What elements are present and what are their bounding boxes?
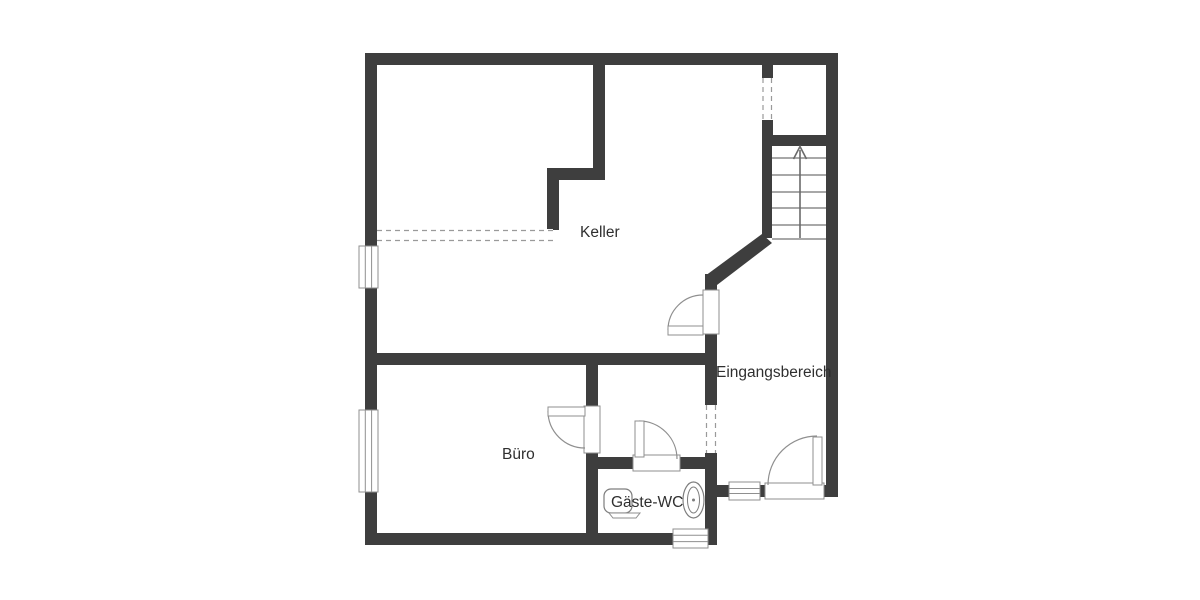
stairs	[772, 147, 826, 240]
door-main-entrance	[765, 436, 824, 499]
landing-wall-segment	[762, 53, 773, 80]
walls	[365, 53, 838, 545]
room-label-keller: Keller	[580, 224, 620, 241]
diagonal-wall	[705, 234, 772, 285]
room-label-gaeste-wc: Gäste-WC	[611, 494, 683, 511]
inner-wall-vertical	[547, 168, 559, 230]
room-label-buero: Büro	[502, 446, 535, 463]
floorplan-canvas: Keller Eingangsbereich Büro Gäste-WC	[0, 0, 1200, 600]
window-symbol-wc-bottom	[673, 529, 708, 548]
wc-wall-segment	[586, 457, 635, 469]
room-label-eingangsbereich: Eingangsbereich	[716, 364, 831, 381]
dashed-opening-corridor	[704, 405, 718, 453]
door-buero	[548, 406, 600, 453]
window-symbol-left-lower	[359, 410, 378, 492]
dashed-opening-landing	[761, 78, 774, 120]
buero-wall-segment	[586, 353, 598, 408]
floorplan-drawing: Keller Eingangsbereich Büro Gäste-WC	[0, 0, 1200, 600]
window-symbol-left-upper	[359, 246, 378, 288]
toilet-icon	[683, 482, 704, 518]
door-keller-entrance	[668, 290, 719, 335]
outer-wall-right	[826, 53, 838, 497]
outer-wall-bottom	[365, 533, 717, 545]
dashed-partition	[377, 229, 553, 242]
landing-wall-horizontal	[762, 135, 838, 146]
door-wc	[633, 421, 680, 471]
window-symbol-entrance	[729, 482, 760, 500]
divider-wall-horizontal	[365, 353, 717, 365]
inner-wall-vertical	[593, 53, 605, 174]
stair-wall	[762, 146, 772, 238]
stair-treads	[772, 158, 826, 239]
